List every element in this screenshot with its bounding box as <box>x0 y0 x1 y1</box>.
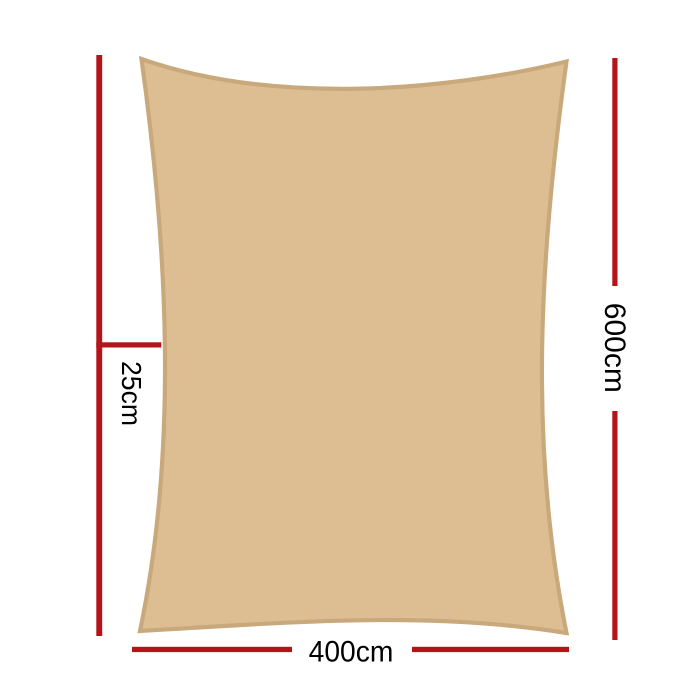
svg-text:400cm: 400cm <box>309 636 394 669</box>
svg-text:25cm: 25cm <box>116 361 148 426</box>
svg-text:600cm: 600cm <box>598 303 631 393</box>
